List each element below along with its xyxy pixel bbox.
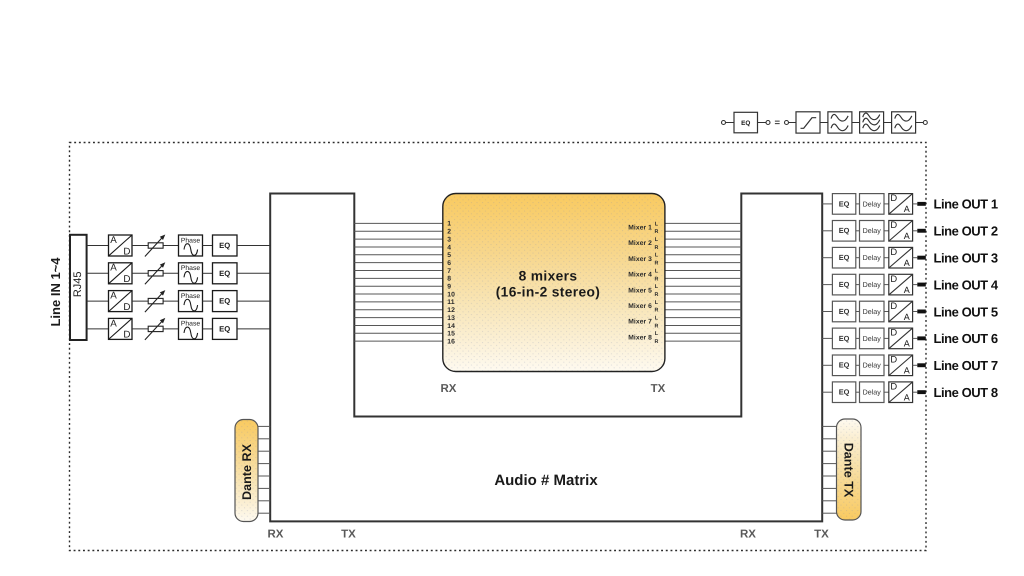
svg-text:(16-in-2 stereo): (16-in-2 stereo) bbox=[496, 285, 601, 300]
svg-text:EQ: EQ bbox=[839, 388, 850, 397]
svg-text:D: D bbox=[890, 246, 897, 257]
svg-text:Delay: Delay bbox=[863, 335, 882, 343]
svg-text:Mixer 2: Mixer 2 bbox=[628, 240, 652, 247]
svg-text:R: R bbox=[654, 245, 658, 251]
svg-text:A: A bbox=[110, 235, 117, 246]
svg-text:EQ: EQ bbox=[219, 241, 230, 250]
svg-text:1: 1 bbox=[447, 221, 451, 228]
svg-text:Phase: Phase bbox=[181, 293, 200, 300]
svg-text:D: D bbox=[890, 273, 897, 284]
svg-text:TX: TX bbox=[651, 383, 666, 395]
svg-text:A: A bbox=[110, 291, 117, 302]
svg-text:R: R bbox=[654, 292, 658, 298]
svg-text:Line OUT 3: Line OUT 3 bbox=[934, 251, 998, 266]
svg-text:Phase: Phase bbox=[181, 237, 200, 244]
svg-text:TX: TX bbox=[814, 529, 829, 541]
svg-text:8 mixers: 8 mixers bbox=[519, 269, 578, 284]
svg-text:Line OUT 6: Line OUT 6 bbox=[934, 331, 998, 346]
svg-text:EQ: EQ bbox=[839, 226, 850, 235]
svg-text:D: D bbox=[890, 327, 897, 338]
svg-text:Dante RX: Dante RX bbox=[240, 443, 254, 500]
svg-text:EQ: EQ bbox=[839, 253, 850, 262]
svg-text:R: R bbox=[654, 308, 658, 314]
svg-text:Delay: Delay bbox=[863, 227, 882, 235]
svg-text:A: A bbox=[904, 204, 910, 214]
svg-text:D: D bbox=[890, 300, 897, 311]
svg-text:EQ: EQ bbox=[839, 361, 850, 370]
svg-text:Line OUT 4: Line OUT 4 bbox=[934, 277, 999, 292]
svg-text:10: 10 bbox=[447, 291, 455, 298]
svg-text:Mixer 4: Mixer 4 bbox=[628, 272, 652, 279]
svg-text:9: 9 bbox=[447, 284, 451, 291]
svg-text:R: R bbox=[654, 229, 658, 235]
svg-text:EQ: EQ bbox=[219, 297, 230, 306]
svg-text:6: 6 bbox=[447, 260, 451, 267]
svg-text:Mixer 3: Mixer 3 bbox=[628, 256, 652, 263]
svg-text:Delay: Delay bbox=[863, 362, 882, 370]
svg-text:EQ: EQ bbox=[219, 269, 230, 278]
svg-text:A: A bbox=[904, 366, 910, 376]
svg-text:A: A bbox=[110, 263, 117, 274]
svg-text:R: R bbox=[654, 339, 658, 345]
svg-text:Line OUT 5: Line OUT 5 bbox=[934, 304, 998, 319]
svg-text:D: D bbox=[123, 330, 130, 341]
svg-text:D: D bbox=[123, 302, 130, 313]
svg-text:R: R bbox=[654, 276, 658, 282]
svg-text:RX: RX bbox=[268, 529, 284, 541]
svg-text:R: R bbox=[654, 261, 658, 267]
svg-text:RX: RX bbox=[441, 383, 457, 395]
svg-text:Delay: Delay bbox=[863, 308, 882, 316]
svg-text:Phase: Phase bbox=[181, 321, 200, 328]
svg-text:Phase: Phase bbox=[181, 265, 200, 272]
svg-text:Line OUT 2: Line OUT 2 bbox=[934, 224, 998, 239]
svg-text:Audio # Matrix: Audio # Matrix bbox=[494, 472, 598, 489]
svg-text:=: = bbox=[775, 117, 781, 128]
svg-text:Mixer 8: Mixer 8 bbox=[628, 334, 652, 341]
svg-text:11: 11 bbox=[447, 299, 454, 306]
svg-text:14: 14 bbox=[447, 323, 455, 330]
svg-text:Delay: Delay bbox=[863, 200, 882, 208]
svg-text:A: A bbox=[904, 258, 910, 268]
svg-text:3: 3 bbox=[447, 236, 451, 243]
svg-text:EQ: EQ bbox=[219, 324, 230, 333]
svg-text:4: 4 bbox=[447, 244, 451, 251]
svg-text:8: 8 bbox=[447, 276, 451, 283]
svg-text:D: D bbox=[890, 192, 897, 203]
svg-text:D: D bbox=[123, 246, 130, 257]
svg-text:A: A bbox=[904, 393, 910, 403]
svg-text:D: D bbox=[123, 274, 130, 285]
svg-text:D: D bbox=[890, 219, 897, 230]
svg-text:A: A bbox=[904, 339, 910, 349]
svg-text:Line OUT 8: Line OUT 8 bbox=[934, 385, 998, 400]
svg-text:Delay: Delay bbox=[863, 281, 882, 289]
svg-text:A: A bbox=[110, 318, 117, 329]
svg-text:A: A bbox=[904, 231, 910, 241]
svg-text:Mixer 7: Mixer 7 bbox=[628, 319, 652, 326]
svg-text:Line IN 1~4: Line IN 1~4 bbox=[48, 257, 63, 327]
svg-text:RX: RX bbox=[740, 529, 756, 541]
svg-text:Dante TX: Dante TX bbox=[842, 443, 856, 498]
svg-text:Mixer 6: Mixer 6 bbox=[628, 303, 652, 310]
svg-text:EQ: EQ bbox=[839, 199, 850, 208]
svg-text:R: R bbox=[654, 323, 658, 329]
svg-text:13: 13 bbox=[447, 315, 455, 322]
svg-text:EQ: EQ bbox=[839, 280, 850, 289]
svg-text:Line OUT 7: Line OUT 7 bbox=[934, 358, 998, 373]
svg-text:12: 12 bbox=[447, 307, 455, 314]
svg-text:EQ: EQ bbox=[839, 307, 850, 316]
svg-text:TX: TX bbox=[341, 529, 356, 541]
svg-text:D: D bbox=[890, 354, 897, 365]
svg-text:EQ: EQ bbox=[741, 120, 750, 127]
svg-text:Delay: Delay bbox=[863, 254, 882, 262]
svg-text:7: 7 bbox=[447, 268, 451, 275]
svg-text:D: D bbox=[890, 381, 897, 392]
svg-text:Delay: Delay bbox=[863, 389, 882, 397]
svg-text:16: 16 bbox=[447, 338, 455, 345]
svg-text:A: A bbox=[904, 285, 910, 295]
svg-text:2: 2 bbox=[447, 229, 451, 236]
svg-text:A: A bbox=[904, 312, 910, 322]
svg-text:Mixer 1: Mixer 1 bbox=[628, 225, 652, 232]
svg-text:Line OUT 1: Line OUT 1 bbox=[934, 197, 998, 212]
svg-text:Mixer 5: Mixer 5 bbox=[628, 287, 652, 294]
svg-text:5: 5 bbox=[447, 252, 451, 259]
svg-text:EQ: EQ bbox=[839, 334, 850, 343]
svg-text:RJ45: RJ45 bbox=[72, 271, 84, 297]
svg-text:15: 15 bbox=[447, 331, 455, 338]
